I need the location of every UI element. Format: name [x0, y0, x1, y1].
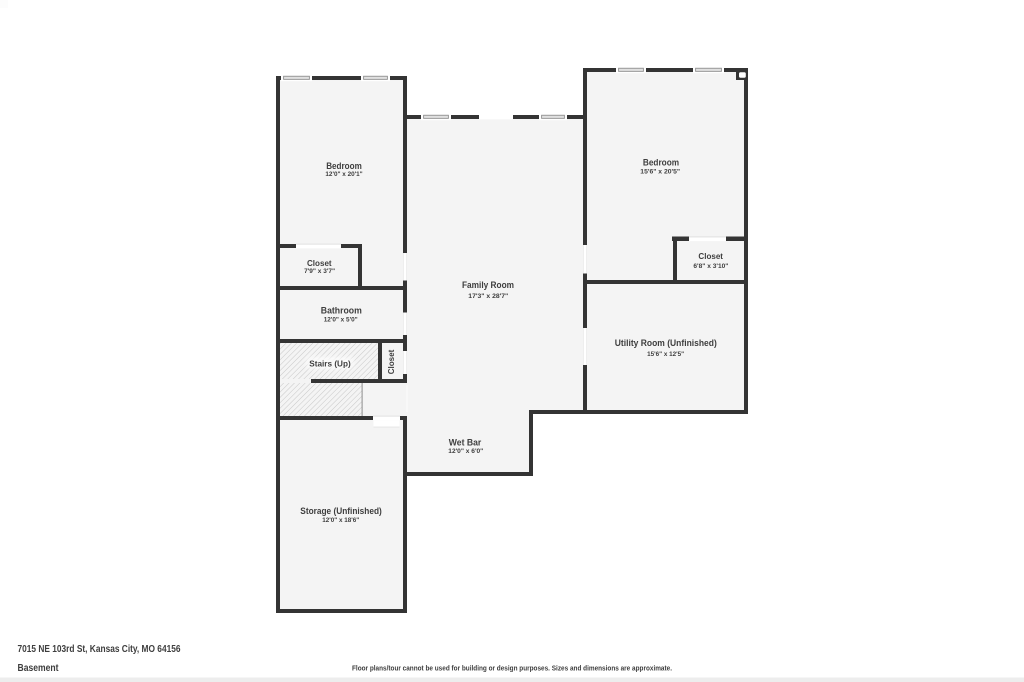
svg-text:Bathroom: Bathroom: [321, 306, 362, 316]
svg-text:Bedroom: Bedroom: [326, 161, 362, 171]
svg-text:Closet: Closet: [698, 251, 723, 261]
svg-text:Floor plans/tour cannot be use: Floor plans/tour cannot be used for buil…: [352, 666, 672, 673]
svg-text:7'9" x 3'7": 7'9" x 3'7": [304, 268, 335, 275]
svg-text:Stairs (Up): Stairs (Up): [309, 358, 351, 368]
svg-text:12'0" x 18'6": 12'0" x 18'6": [322, 517, 359, 524]
svg-text:Wet Bar: Wet Bar: [449, 437, 482, 447]
svg-text:6'8" x 3'10": 6'8" x 3'10": [693, 263, 728, 270]
svg-text:15'6" x 12'5": 15'6" x 12'5": [647, 351, 684, 358]
svg-text:12'0" x 20'1": 12'0" x 20'1": [325, 171, 362, 178]
svg-text:Bedroom: Bedroom: [643, 158, 679, 168]
svg-text:Closet: Closet: [386, 350, 396, 375]
svg-text:12'0" x 6'0": 12'0" x 6'0": [448, 448, 483, 455]
svg-text:Storage (Unfinished): Storage (Unfinished): [300, 506, 382, 516]
svg-text:7015 NE 103rd St, Kansas City,: 7015 NE 103rd St, Kansas City, MO 64156: [18, 644, 181, 655]
svg-text:15'6" x 20'5": 15'6" x 20'5": [640, 169, 680, 176]
svg-text:Utility Room (Unfinished): Utility Room (Unfinished): [615, 338, 717, 348]
svg-text:Closet: Closet: [307, 258, 332, 268]
svg-text:12'0" x 5'0": 12'0" x 5'0": [324, 317, 358, 324]
svg-text:Basement: Basement: [18, 663, 60, 674]
svg-text:17'3" x 28'7": 17'3" x 28'7": [468, 293, 508, 300]
svg-text:Family Room: Family Room: [462, 280, 514, 290]
